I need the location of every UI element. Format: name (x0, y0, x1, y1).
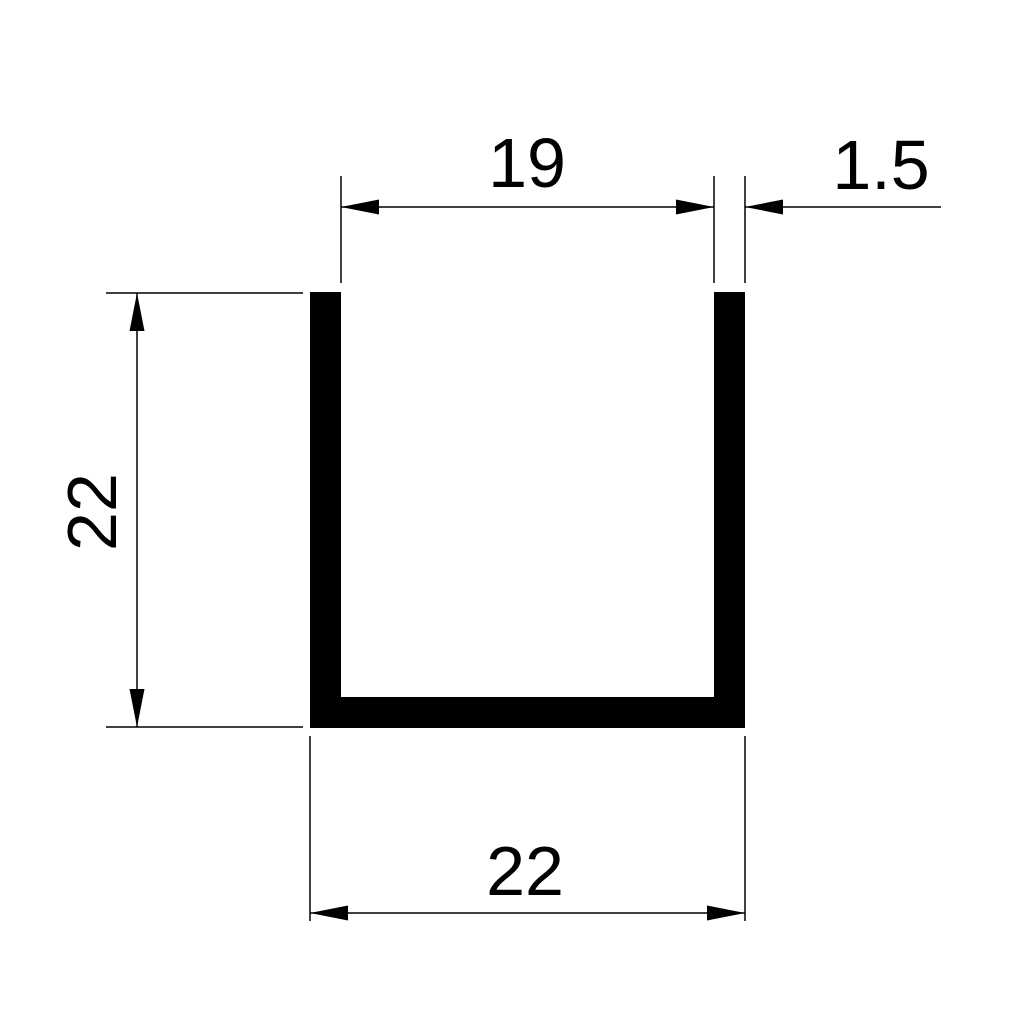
u-profile-right-flange (714, 292, 745, 728)
arrow-wall-thickness (745, 200, 783, 215)
u-profile-left-flange (310, 292, 341, 728)
dim-label-inner-width: 19 (488, 128, 566, 198)
dimension-lines (106, 176, 941, 921)
arrow-outer-width-left (310, 906, 348, 921)
arrow-inner-width-right (676, 200, 714, 215)
dim-label-height: 22 (57, 473, 127, 551)
dim-label-wall-thickness: 1.5 (832, 130, 929, 200)
u-profile (310, 292, 745, 728)
arrow-outer-width-right (707, 906, 745, 921)
arrow-height-bottom (130, 689, 145, 727)
drawing-canvas: 19 1.5 22 22 (0, 0, 1024, 1024)
u-profile-bottom-web (310, 697, 745, 728)
dimension-arrows (130, 200, 784, 921)
dim-label-outer-width: 22 (486, 836, 564, 906)
arrow-height-top (130, 293, 145, 331)
arrow-inner-width-left (341, 200, 379, 215)
